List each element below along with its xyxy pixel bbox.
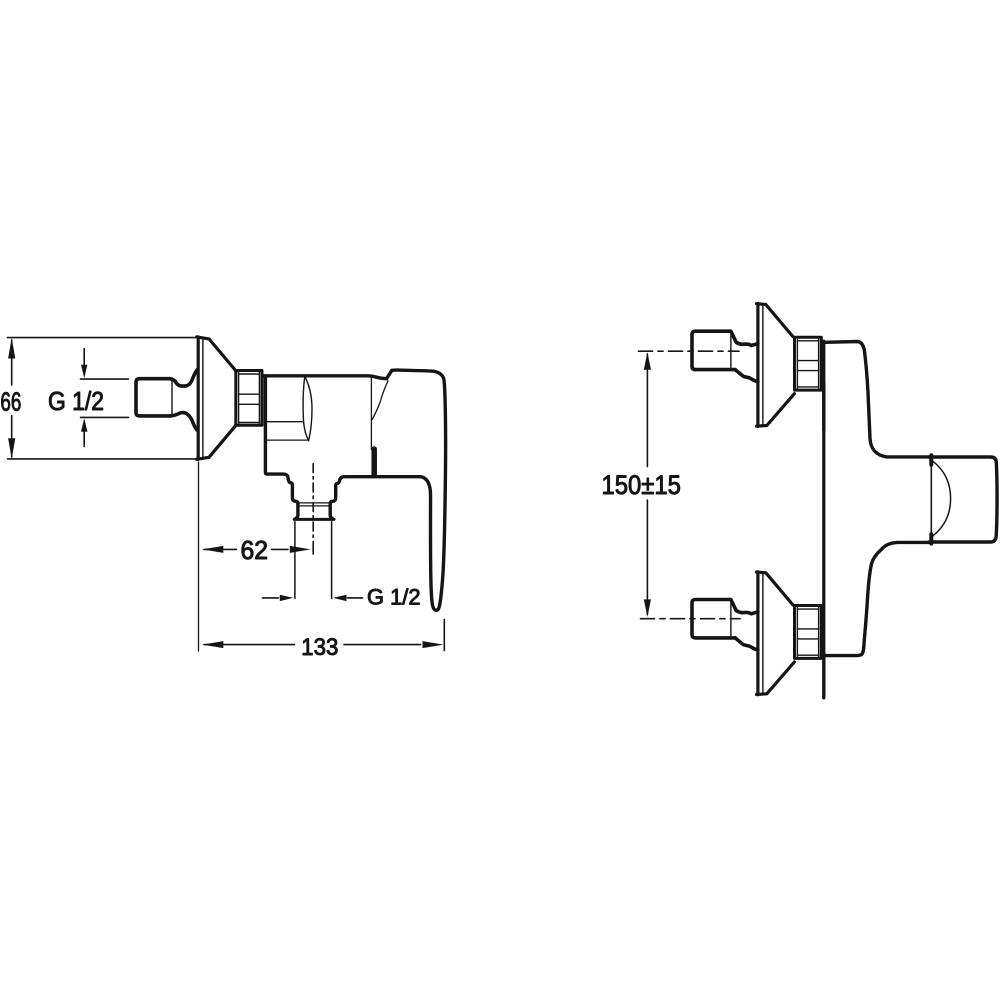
svg-text:150±15: 150±15: [601, 470, 681, 500]
svg-text:G 1/2: G 1/2: [367, 585, 421, 610]
svg-text:133: 133: [301, 634, 338, 661]
svg-text:G 1/2: G 1/2: [48, 386, 104, 416]
svg-text:66: 66: [0, 387, 21, 417]
svg-text:62: 62: [241, 535, 269, 565]
